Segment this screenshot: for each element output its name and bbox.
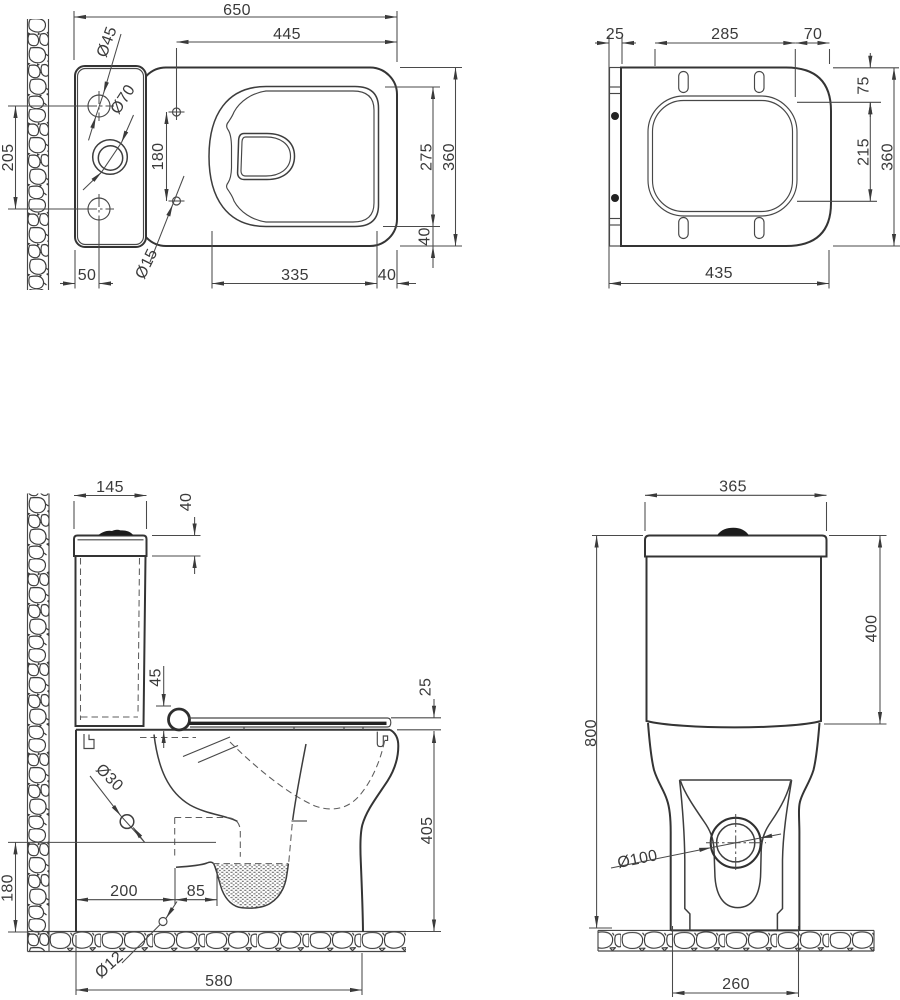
svg-text:200: 200 (110, 883, 138, 900)
svg-text:275: 275 (419, 143, 436, 171)
svg-text:360: 360 (879, 143, 896, 171)
svg-text:25: 25 (606, 26, 625, 43)
svg-text:800: 800 (583, 719, 600, 747)
svg-text:205: 205 (0, 144, 17, 172)
svg-text:335: 335 (281, 267, 309, 284)
svg-text:40: 40 (178, 493, 195, 512)
svg-text:180: 180 (150, 143, 167, 171)
svg-text:75: 75 (855, 76, 872, 95)
svg-text:40: 40 (378, 267, 397, 284)
svg-text:45: 45 (148, 668, 165, 687)
svg-text:405: 405 (419, 817, 436, 845)
svg-text:285: 285 (711, 26, 739, 43)
svg-text:215: 215 (855, 138, 872, 166)
svg-text:445: 445 (273, 26, 301, 43)
svg-text:180: 180 (0, 874, 17, 902)
svg-text:650: 650 (223, 2, 251, 19)
svg-text:85: 85 (187, 883, 206, 900)
svg-text:70: 70 (804, 26, 823, 43)
svg-text:50: 50 (78, 267, 97, 284)
svg-text:260: 260 (722, 976, 750, 993)
svg-text:365: 365 (719, 479, 747, 496)
svg-text:40: 40 (417, 227, 434, 246)
svg-text:360: 360 (441, 143, 458, 171)
svg-text:25: 25 (418, 678, 435, 697)
svg-text:580: 580 (205, 973, 233, 990)
svg-text:435: 435 (705, 265, 733, 282)
svg-text:145: 145 (96, 479, 124, 496)
svg-text:400: 400 (864, 615, 881, 643)
